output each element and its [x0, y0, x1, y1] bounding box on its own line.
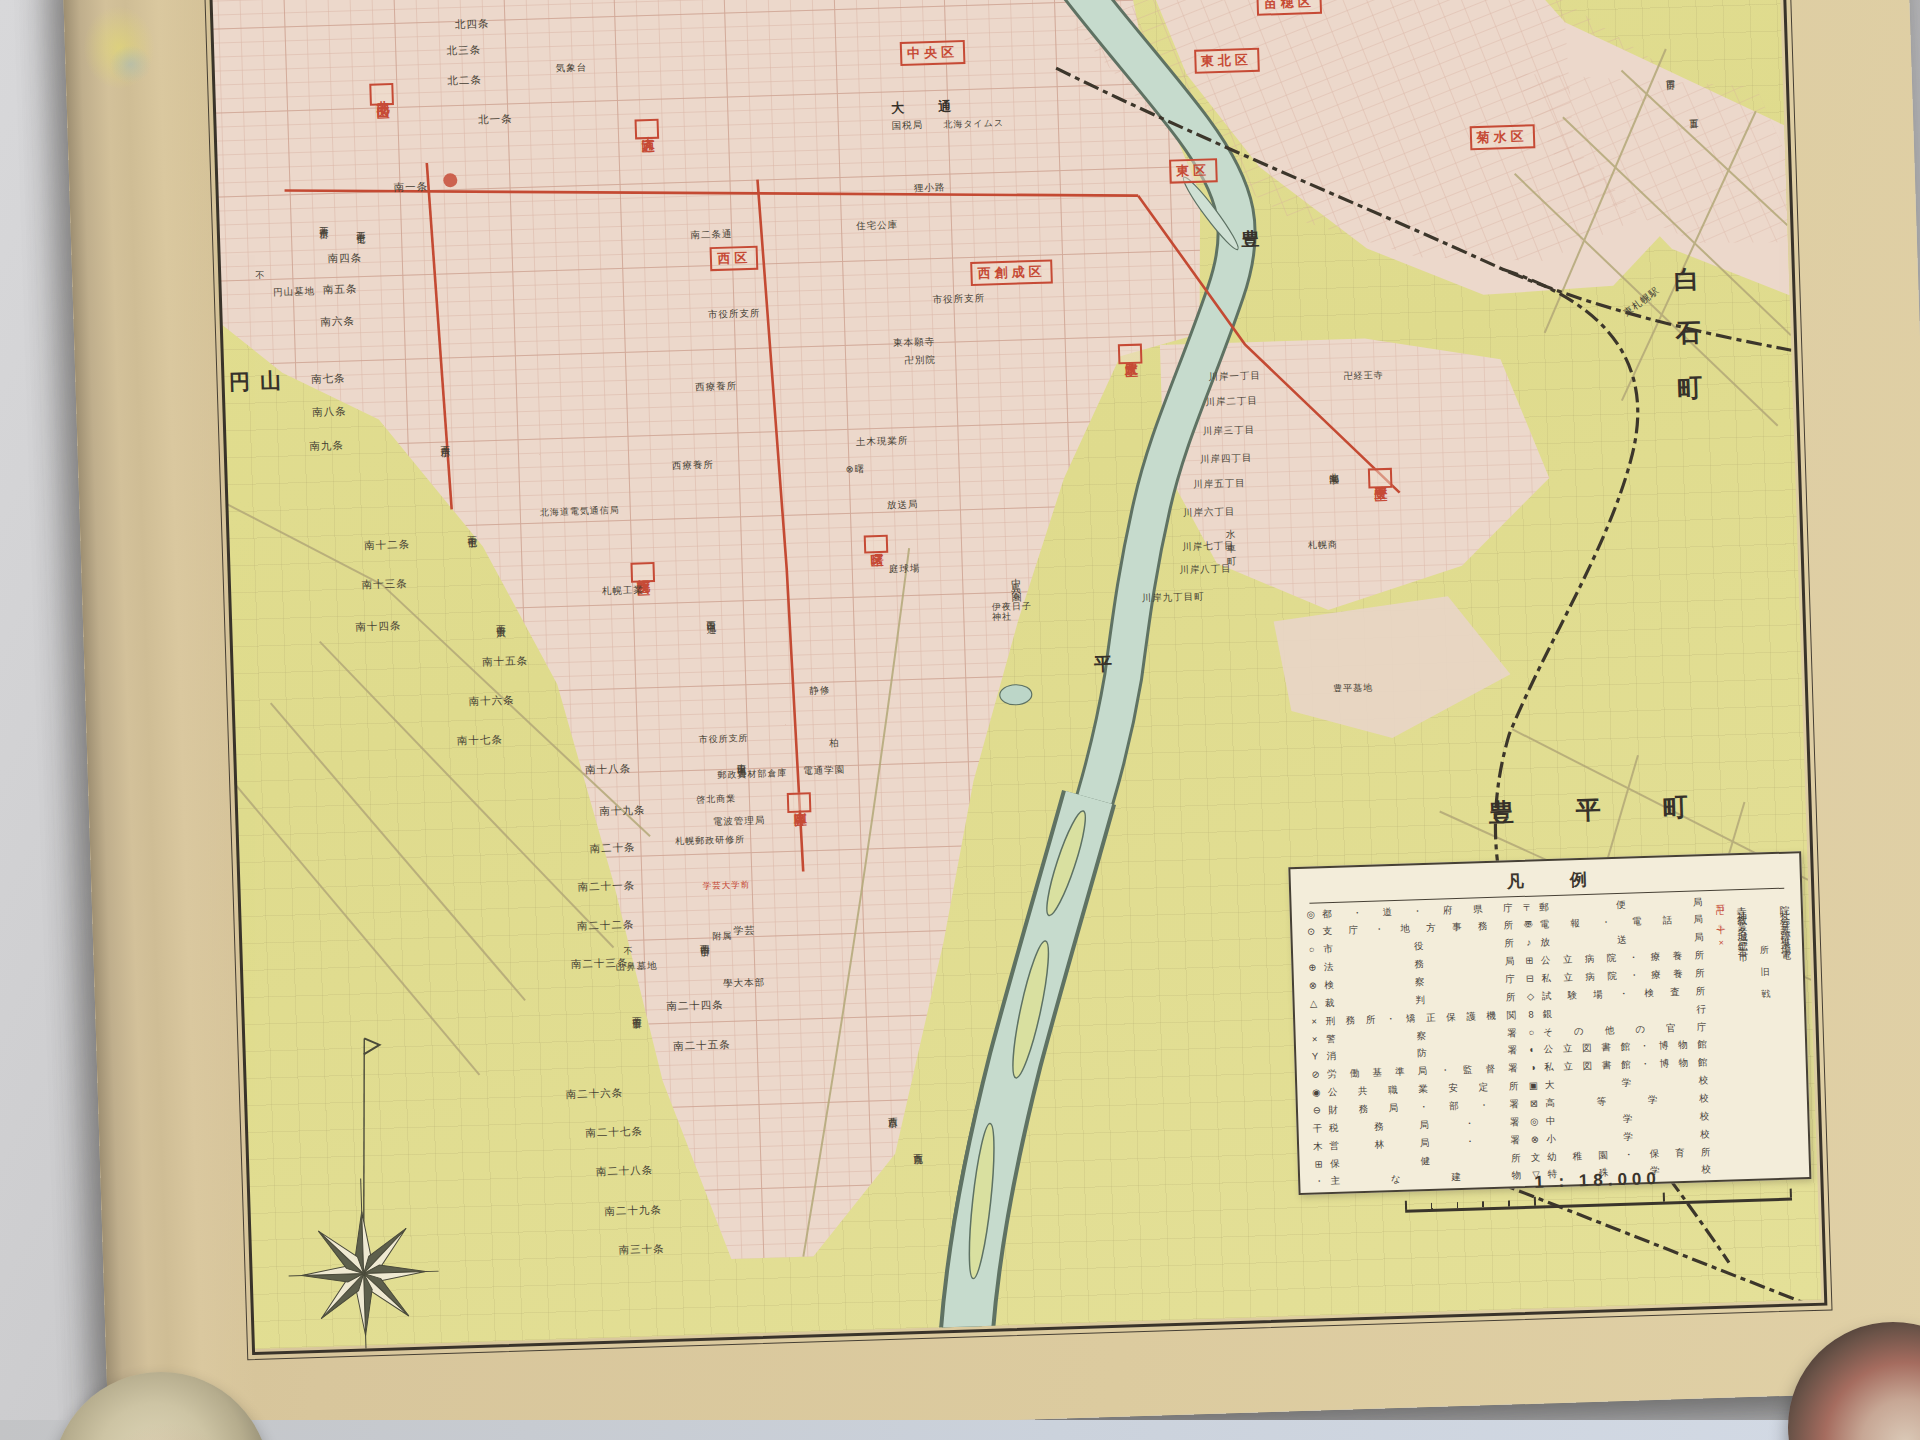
landmark-label: 札幌郵政研修所: [675, 834, 745, 847]
legend-label: 銀行: [1542, 1004, 1706, 1019]
map-sheet: 北円山区大通区中央区東北区苗穂区東区菊水区西区西創成区豊水区曙区幌西区山鼻区豊平…: [62, 0, 1920, 1440]
legend-symbol-icon: 8: [1524, 1009, 1537, 1019]
street-label: 五丁目: [1688, 111, 1698, 114]
legend-row: ◎ 都・道・府県庁: [1304, 903, 1513, 919]
legend-label: 市役所: [1323, 938, 1514, 953]
street-label: 西十六丁目: [495, 617, 506, 622]
legend-symbol-icon: ⊠: [1527, 1098, 1540, 1108]
street-label: 西二十七丁目: [355, 223, 366, 229]
landmark-label: 西屯田通: [705, 613, 716, 617]
legend-label: 小学校: [1546, 1129, 1710, 1144]
district-box: 東区: [1169, 158, 1218, 183]
legend-label: 労働基準局・監督署: [1327, 1063, 1518, 1078]
street-label: 南十九条: [599, 803, 645, 817]
landmark-label: 気象台: [555, 62, 587, 74]
district-box: 曙区: [864, 534, 889, 553]
legend-row: ⊞ 公立病院・療養所: [1523, 950, 1705, 965]
street-label: 南二十二条: [577, 917, 635, 931]
legend-column-2: 〒 郵便局 〠 電報・電話局 ♪ 放送局 ⊞ 公立病院・療養所 ⊟ 私立病院・療…: [1521, 897, 1711, 1180]
street-label: 南二十六条: [565, 1086, 623, 1100]
legend-label: 裁判所: [1325, 992, 1516, 1007]
street-label: 南八条: [312, 404, 347, 417]
landmark-label: 南二条通: [690, 229, 732, 241]
legend-symbol-icon: ・: [1312, 1177, 1325, 1187]
legend-symbol-icon: ○: [1305, 945, 1318, 955]
street-label: 南十六条: [468, 693, 514, 707]
landmark-label: 市役所支所: [698, 733, 748, 745]
landmark-label: 不: [624, 945, 634, 956]
landmark-label: 啓北商業: [696, 793, 736, 805]
legend-label: 試験場・検査所: [1542, 986, 1706, 1001]
legend-right-symbols: 卍⛩十♨×: [1713, 898, 1734, 1168]
street-label: 南二十九条: [604, 1203, 662, 1217]
landmark-label: 東本願寺: [893, 337, 935, 349]
legend-row: ○ その他の官庁: [1525, 1022, 1707, 1037]
legend-symbol-icon: ⊞: [1312, 1159, 1325, 1169]
street-label: 西十七丁目: [466, 528, 477, 533]
legend-symbol-icon: 〒: [1521, 902, 1534, 912]
landmark-label: 円山墓地: [273, 286, 315, 298]
landmark-label: 學大本部: [723, 977, 765, 989]
compass-rose-icon: [281, 1016, 441, 1351]
landmark-label: 山鼻墓地: [615, 961, 657, 973]
legend-symbol-icon: ⊙: [1305, 927, 1318, 937]
landmark-label: 狸小路: [914, 182, 946, 194]
street-label: 川岸一丁目: [1208, 370, 1261, 383]
legend-row: × 警察署: [1308, 1028, 1517, 1044]
legend-row: 〠 電報・電話局: [1522, 915, 1704, 930]
legend-label: 支庁・地方事務所: [1323, 921, 1514, 936]
legend-label: 電報・電話局: [1540, 915, 1704, 930]
nakajima-park-pond: [999, 684, 1032, 705]
legend-row: ◐ 公立図書館・博物館: [1526, 1040, 1708, 1055]
legend-row: Y 消防署: [1309, 1046, 1518, 1062]
landmark-label: 卍別院: [904, 355, 936, 367]
legend-symbol-icon: 〠: [1522, 920, 1535, 930]
landmark-label: 市役所支所: [933, 293, 986, 306]
street-label: 南十八条: [585, 761, 631, 775]
street-label: 南十三条: [361, 576, 407, 590]
legend-symbol-icon: Y: [1309, 1052, 1322, 1062]
legend-symbol-icon: ⊗: [1528, 1134, 1541, 1144]
legend-row: ◉ 公共職業安定所: [1310, 1081, 1519, 1097]
legend-row: ○ 市役所: [1305, 938, 1514, 954]
district-box: 菊水区: [1469, 124, 1535, 150]
district-box: 豊平区: [1368, 468, 1393, 489]
street-label: 西十四丁目: [698, 936, 709, 941]
area-name: 平: [1094, 651, 1121, 676]
street-label: 西十八丁目: [439, 437, 450, 442]
legend-label: 大学校: [1545, 1075, 1709, 1090]
street-label: 南二十条: [589, 841, 635, 855]
landmark-label: 学芸大学前: [702, 880, 750, 891]
district-box: 幌西区: [630, 562, 655, 583]
street-label: 北一条: [478, 112, 513, 125]
landmark-label: 附属: [712, 930, 732, 941]
street-label: 南二十七条: [585, 1124, 643, 1138]
legend-symbol-icon: ◐: [1526, 1045, 1539, 1055]
district-box: 山鼻区: [787, 792, 812, 813]
legend-row: ⊘ 労働基準局・監督署: [1309, 1063, 1518, 1079]
street-label: 西二十八丁目: [318, 219, 329, 225]
legend-label: 高等学校: [1545, 1093, 1709, 1108]
district-box: 東北区: [1194, 48, 1260, 74]
landmark-label: 市役所支所: [708, 308, 761, 321]
legend-row: 〒 郵便局: [1521, 897, 1703, 912]
street-label: 北四条: [455, 17, 490, 30]
legend-symbol-icon: ◇: [1524, 991, 1537, 1001]
landmark-label: ⊗曙: [845, 463, 865, 475]
street-label: 南二十一条: [577, 878, 635, 892]
legend-label: 財務局・部・署: [1328, 1099, 1519, 1114]
legend-label: 営林局・署: [1329, 1135, 1520, 1150]
landmark-label: 北海タイムス: [943, 117, 1004, 129]
street-label: 西八丁目: [887, 1110, 898, 1114]
legend-row: △ 裁判所: [1307, 992, 1516, 1008]
street-label: 南九条: [309, 439, 344, 452]
street-label: 南四条: [327, 251, 362, 264]
landmark-label: 電波管理局: [713, 815, 766, 828]
street-label: 南二十五条: [673, 1037, 731, 1051]
legend-row: 干 税務局・署: [1311, 1117, 1520, 1133]
legend-symbol-icon: ⊘: [1309, 1070, 1322, 1080]
landmark-label: 西療養所: [672, 459, 714, 471]
area-name: 円山: [229, 366, 292, 396]
legend-label: 私立病院・療養所: [1541, 968, 1705, 983]
legend-row: ⊗ 検察庁: [1306, 974, 1515, 990]
photo-of-map: { "palette":{"paper_margin":"#d8c69c","m…: [0, 0, 1920, 1440]
landmark-label: 西療養所: [695, 380, 737, 392]
landmark-label: 札幌商: [1308, 539, 1338, 550]
legend-label: 警察署: [1326, 1028, 1517, 1043]
legend-row: ⊙ 支庁・地方事務所: [1305, 921, 1514, 937]
legend-box: 凡例 ◎ 都・道・府県庁 ⊙ 支庁・地方事務所 ○ 市役所 ⊕ 法務局 ⊗: [1289, 851, 1812, 1195]
street-label: 南十二条: [364, 537, 410, 551]
legend-symbol-icon: ⊖: [1310, 1105, 1323, 1115]
street-label: 南二十四条: [666, 999, 724, 1013]
legend-label: 郵便局: [1539, 897, 1703, 912]
legend-symbol-icon: ⊟: [1523, 973, 1536, 983]
landmark-label: 北海学園: [1328, 465, 1339, 469]
legend-symbol-icon: ▣: [1527, 1081, 1540, 1091]
landmark-label: 郵政資材部倉庫: [717, 768, 787, 781]
legend-row: ⊟ 私立病院・療養所: [1523, 968, 1705, 983]
landmark-label: 札幌工業: [602, 584, 644, 596]
street-label: 西十五丁目: [631, 1009, 642, 1014]
legend-label: 刑務所・矯正保護機関: [1325, 1010, 1516, 1025]
landmark-label: 放送局: [887, 499, 919, 511]
street-label: 四丁目: [1665, 73, 1675, 76]
street-label: 川岸八丁目: [1179, 563, 1232, 576]
legend-symbol-icon: ◎: [1304, 909, 1317, 919]
compass-rose: [281, 1016, 441, 1355]
legend-label: 保健所: [1330, 1153, 1521, 1168]
legend-row: ▣ 大学校: [1527, 1075, 1709, 1090]
legend-label: 検察庁: [1324, 974, 1515, 989]
legend-symbol-icon: 木: [1311, 1141, 1324, 1151]
street-label: 水車町: [1224, 520, 1236, 562]
street-label: 南十七条: [457, 732, 503, 746]
legend-symbol-icon: ×: [1308, 1034, 1321, 1044]
street-label: 南一条: [393, 179, 428, 192]
legend-symbol-icon: 文: [1529, 1152, 1542, 1162]
landmark-label: 学芸: [733, 924, 755, 936]
scale-subdivisions: [1405, 1200, 1534, 1210]
landmark-label: 東屯田通: [735, 756, 746, 760]
street-label: 南七条: [311, 371, 346, 384]
legend-symbol-icon: ×: [1307, 1016, 1320, 1026]
legend-row: ⊕ 法務局: [1306, 956, 1515, 972]
street-label: 南十五条: [482, 654, 528, 668]
landmark-label: 柏: [829, 737, 840, 748]
district-box: 豊水区: [1118, 344, 1143, 365]
street-label: 南六条: [320, 314, 355, 327]
district-box: 西区: [710, 246, 759, 271]
legend-label: 幼稚園・保育所: [1547, 1147, 1711, 1162]
street-label: 川岸六丁目: [1183, 506, 1236, 519]
landmark-label: 卍経王寺: [1344, 369, 1384, 381]
district-box: 大通区: [635, 119, 660, 140]
landmark-label: 不: [255, 269, 265, 280]
legend-row: 8 銀行: [1524, 1004, 1706, 1019]
legend-row: × 刑務所・矯正保護機関: [1307, 1010, 1516, 1026]
landmark-label: 庭球場: [889, 564, 921, 576]
legend-symbol-icon: 干: [1311, 1123, 1324, 1133]
legend-symbol-icon: ◑: [1526, 1063, 1539, 1073]
legend-symbol-icon: ◎: [1528, 1116, 1541, 1126]
street-label: 南二十八条: [596, 1163, 654, 1177]
legend-label: 法務局: [1324, 956, 1515, 971]
legend-symbol-icon: ⊕: [1306, 962, 1319, 972]
legend-symbol-icon: ⊞: [1523, 956, 1536, 966]
north-flag-icon: [363, 1038, 379, 1054]
legend-label: 税務局・署: [1329, 1117, 1520, 1132]
legend-row: 木 営林局・署: [1311, 1135, 1520, 1151]
legend-label: 公立病院・療養所: [1541, 950, 1705, 965]
street-label: 南十四条: [355, 618, 401, 632]
street-label: 西九丁目: [912, 1146, 923, 1150]
legend-row: ◑ 私立図書館・博物館: [1526, 1057, 1708, 1072]
legend-symbol-icon: ○: [1525, 1027, 1538, 1037]
street-label: 北三条: [446, 43, 481, 56]
landmark-label: 電通学園: [803, 764, 845, 776]
legend-right-col-a: 寺神教霊名城温鉱古市: [1734, 897, 1756, 1167]
legend-row: ⊖ 財務局・部・署: [1310, 1099, 1519, 1115]
street-label: 川岸五丁目: [1193, 478, 1246, 491]
landmark-label: 豊平墓地: [1333, 682, 1373, 694]
area-name: 白石町: [1670, 246, 1708, 412]
legend-right-col-mid: 所旧戦: [1756, 897, 1777, 1167]
street-label: 川岸四丁目: [1200, 453, 1253, 466]
legend-symbol-icon: ◉: [1310, 1087, 1323, 1097]
legend-label: その他の官庁: [1543, 1022, 1707, 1037]
legend-right-col-b: 院社会堂墓跡址泉場電: [1777, 896, 1799, 1166]
legend-row: ⊠ 高等学校: [1527, 1093, 1709, 1108]
legend-label: 中学校: [1546, 1111, 1710, 1126]
area-name: 大通: [891, 96, 986, 117]
legend-symbol-icon: ⊗: [1306, 980, 1319, 990]
legend-label: 公共職業安定所: [1328, 1081, 1519, 1096]
legend-row: ◇ 試験場・検査所: [1524, 986, 1706, 1001]
street-label: 川岸九丁目町: [1142, 591, 1205, 604]
legend-label: 私立図書館・博物館: [1544, 1057, 1708, 1072]
pink-zone-toyohira-south: [1273, 594, 1512, 741]
landmark-label: 土木現業所: [856, 435, 909, 448]
district-box: 苗穂区: [1256, 0, 1322, 15]
legend-column-right: 卍⛩十♨× 寺神教霊名城温鉱古市 所旧戦 院社会堂墓跡址泉場電: [1711, 894, 1800, 1174]
street-label: 川岸二丁目: [1205, 396, 1258, 409]
legend-label: 都・道・府県庁: [1322, 903, 1513, 918]
legend-row: ♪ 放送局: [1522, 932, 1704, 947]
area-name: 豊: [1241, 227, 1268, 252]
street-label: 北二条: [447, 73, 482, 86]
landmark-label: 静修: [809, 685, 830, 697]
legend-label: 消防署: [1327, 1046, 1518, 1061]
landmark-label: 伊夜日子神社: [992, 600, 1035, 622]
legend-row: 文 幼稚園・保育所: [1529, 1147, 1711, 1162]
compass-star: [300, 1210, 428, 1338]
legend-row: ⊗ 小学校: [1528, 1129, 1710, 1144]
street-label: 南三十条: [619, 1242, 665, 1256]
street-label: 南五条: [323, 282, 358, 295]
district-box: 北円山区: [370, 82, 395, 105]
landmark-label: 国税局: [891, 119, 923, 131]
landmark-label: 中島公園: [1010, 570, 1022, 590]
legend-symbol-icon: ♪: [1522, 938, 1535, 948]
legend-column-1: ◎ 都・道・府県庁 ⊙ 支庁・地方事務所 ○ 市役所 ⊕ 法務局 ⊗ 検察庁 △…: [1304, 903, 1522, 1187]
legend-row: ⊞ 保健所: [1312, 1153, 1521, 1169]
legend-row: ◎ 中学校: [1528, 1111, 1710, 1126]
legend-label: 公立図書館・博物館: [1544, 1040, 1708, 1055]
legend-title: 凡例: [1303, 861, 1790, 899]
district-box: 中央区: [900, 40, 966, 66]
street-label: 川岸三丁目: [1202, 424, 1255, 437]
legend-label: 放送局: [1540, 932, 1704, 947]
landmark-label: 住宅公庫: [856, 219, 898, 231]
table-surface-strip: [0, 1420, 1920, 1440]
district-box: 西創成区: [970, 259, 1053, 286]
legend-symbol-icon: △: [1307, 998, 1320, 1008]
